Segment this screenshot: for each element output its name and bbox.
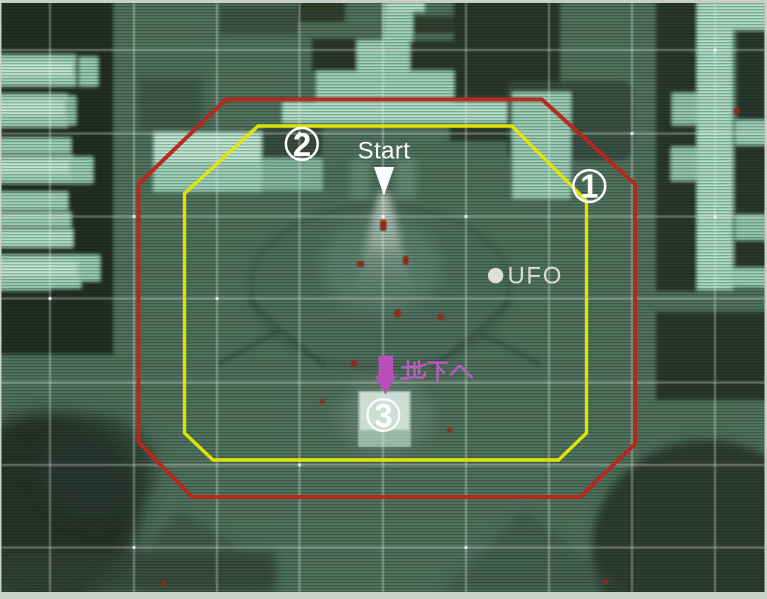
svg-text:3: 3 [374,397,392,434]
svg-text:1: 1 [580,168,598,205]
svg-text:2: 2 [293,126,311,163]
svg-text:Start: Start [358,138,411,165]
svg-text:UFO: UFO [508,263,563,290]
